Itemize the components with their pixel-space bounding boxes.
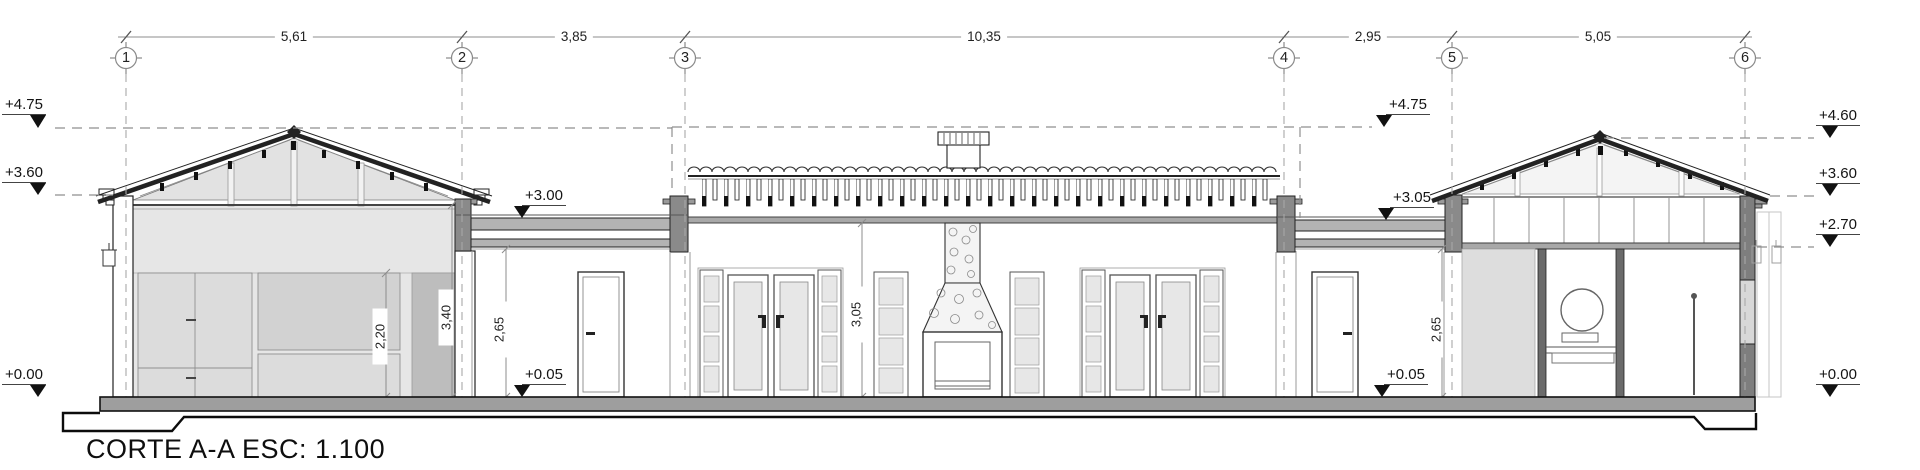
level-link-right-005: +0.05 bbox=[1384, 366, 1428, 385]
span-dim-3-4: 10,35 bbox=[961, 29, 1007, 44]
level-link-left-005: +0.05 bbox=[522, 366, 566, 385]
grid-bubble-3: 3 bbox=[673, 50, 697, 66]
floor-slab bbox=[63, 397, 1756, 431]
dimension-line-top bbox=[118, 31, 1752, 43]
right-building bbox=[1430, 130, 1781, 397]
rafter-tails bbox=[702, 179, 1274, 209]
background-elements bbox=[1752, 212, 1781, 397]
door-left-corridor bbox=[578, 272, 624, 397]
level-left-000: +0.00 bbox=[2, 366, 46, 385]
chimney bbox=[938, 132, 989, 168]
span-dim-5-6: 5,05 bbox=[1579, 29, 1617, 44]
vdim-265-r: 2,65 bbox=[1429, 302, 1444, 358]
roof-tiles bbox=[688, 167, 1276, 172]
grid-bubble-2: 2 bbox=[450, 50, 474, 66]
grid-bubble-4: 4 bbox=[1272, 50, 1296, 66]
level-left-360: +3.60 bbox=[2, 164, 46, 183]
level-left-475: +4.75 bbox=[2, 96, 46, 115]
vdim-220: 2,20 bbox=[373, 309, 388, 365]
section-drawing-canvas: 1 2 3 4 5 6 5,61 3,85 10,35 2,95 5,05 +4… bbox=[0, 0, 1920, 470]
fireplace bbox=[923, 223, 1002, 397]
french-door-unit-2 bbox=[1080, 268, 1225, 397]
level-link-left-300: +3.00 bbox=[522, 187, 566, 206]
left-building bbox=[96, 125, 492, 397]
span-dim-4-5: 2,95 bbox=[1349, 29, 1387, 44]
grid-bubble-6: 6 bbox=[1733, 50, 1757, 66]
shower-column bbox=[1692, 294, 1697, 396]
bathroom-vanity bbox=[1546, 289, 1616, 363]
window-2 bbox=[1010, 272, 1044, 397]
grid-bubbles bbox=[110, 42, 1761, 74]
level-right-360: +3.60 bbox=[1816, 165, 1860, 184]
shower-wall-panel bbox=[1462, 249, 1535, 397]
section-linework bbox=[0, 0, 1920, 470]
span-dim-2-3: 3,85 bbox=[555, 29, 593, 44]
cabinets bbox=[138, 273, 400, 397]
main-building bbox=[688, 132, 1302, 397]
door-right-corridor bbox=[1312, 272, 1358, 397]
link-corridor-left bbox=[455, 196, 695, 397]
vdim-340: 3,40 bbox=[439, 290, 454, 346]
vdim-305: 3,05 bbox=[849, 287, 864, 343]
level-center-475: +4.75 bbox=[1386, 96, 1430, 115]
level-right-460: +4.60 bbox=[1816, 107, 1860, 126]
level-right-000: +0.00 bbox=[1816, 366, 1860, 385]
vdim-265-l: 2,65 bbox=[492, 302, 507, 358]
grid-bubble-1: 1 bbox=[114, 50, 138, 66]
level-link-right-305: +3.05 bbox=[1390, 189, 1434, 208]
span-dim-1-2: 5,61 bbox=[275, 29, 313, 44]
mirror bbox=[1561, 289, 1603, 331]
level-right-270: +2.70 bbox=[1816, 216, 1860, 235]
window-1 bbox=[874, 272, 908, 397]
drawing-title: CORTE A-A ESC: 1.100 bbox=[86, 434, 385, 465]
french-door-unit-1 bbox=[698, 268, 843, 397]
grid-bubble-5: 5 bbox=[1440, 50, 1464, 66]
